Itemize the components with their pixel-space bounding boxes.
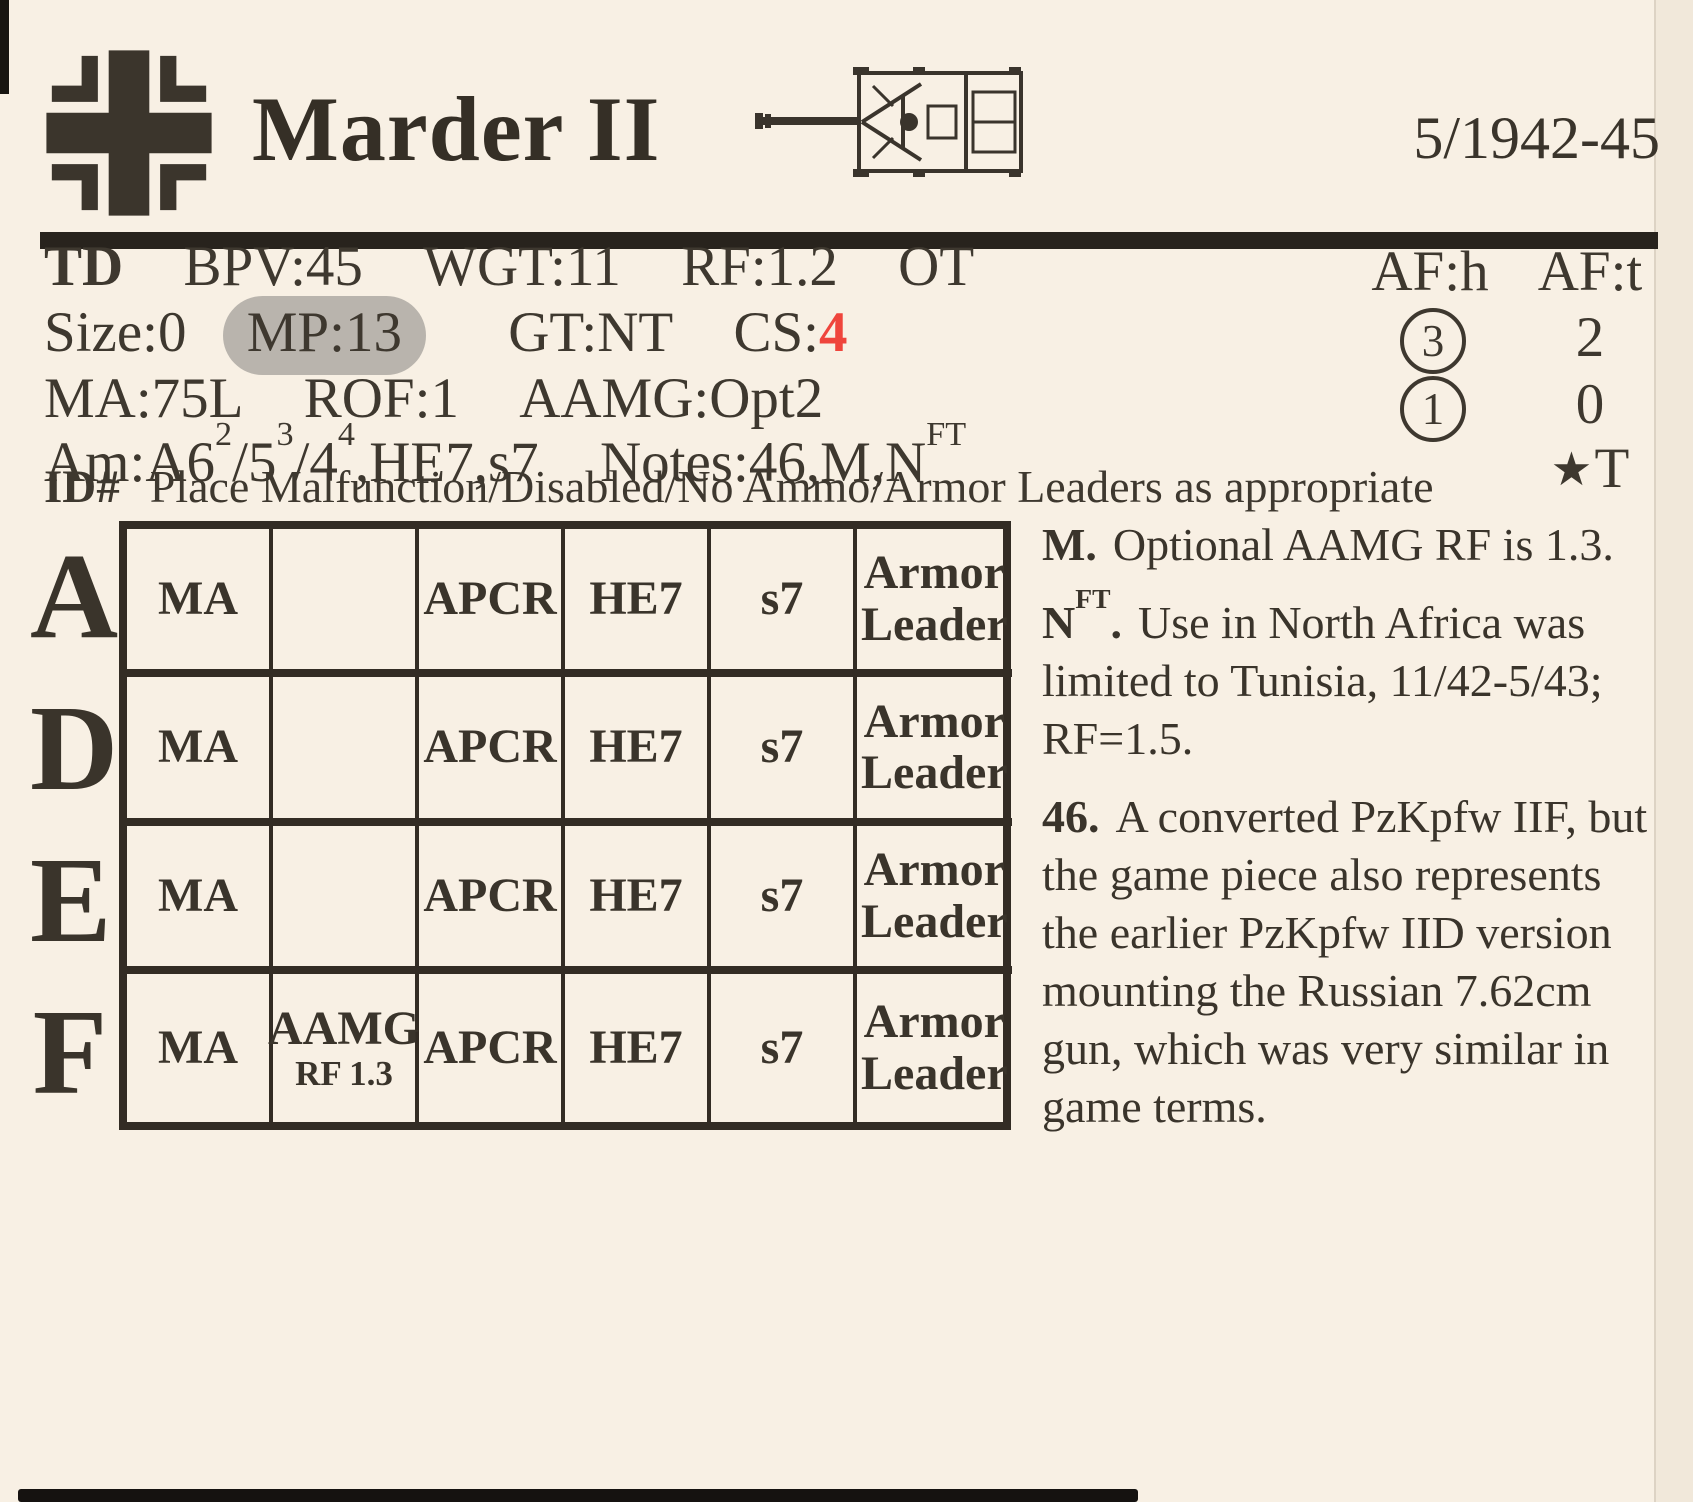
cell-apcr: APCR xyxy=(419,974,565,1122)
star-icon: ★ xyxy=(1551,444,1593,496)
cell-apcr: APCR xyxy=(419,677,565,817)
cell-armor-leader: Armor Leader xyxy=(857,974,1012,1122)
cell-empty xyxy=(273,529,419,669)
note-nft: NFT.Use in North Africa was limited to T… xyxy=(1042,594,1664,768)
usage-row-e: MA APCR HE7 s7 Armor Leader xyxy=(127,826,1012,974)
cell-ma: MA xyxy=(127,974,273,1122)
mp-stat-highlighted: MP:13 xyxy=(223,296,426,375)
row-letter-a: A xyxy=(30,536,110,658)
id-instruction-line: ID#Place Malfunction/Disabled/No Ammo/Ar… xyxy=(44,460,1434,514)
cell-ma: MA xyxy=(127,826,273,966)
cell-aamg: AAMG RF 1.3 xyxy=(273,974,419,1122)
af-hull-rear-circled: 1 xyxy=(1400,376,1466,442)
scan-bottom-bar xyxy=(18,1489,1138,1502)
aamg-stat: AAMG:Opt2 xyxy=(519,368,823,431)
rof-stat: ROF:1 xyxy=(304,368,459,431)
ot-stat: OT xyxy=(898,236,974,299)
cell-ma: MA xyxy=(127,529,273,669)
cell-empty xyxy=(273,677,419,817)
size-stat: Size:0 xyxy=(44,302,186,365)
cell-he7: HE7 xyxy=(565,529,711,669)
af-turret-rear: 0 xyxy=(1505,372,1675,437)
cell-armor-leader: Armor Leader xyxy=(857,677,1012,817)
star-t-note: ★T xyxy=(1505,436,1675,501)
af-hull-front-circled: 3 xyxy=(1400,308,1466,374)
usage-table: MA APCR HE7 s7 Armor Leader MA APCR HE7 … xyxy=(119,521,1011,1130)
cell-s7: s7 xyxy=(711,974,857,1122)
wgt-stat: WGT:11 xyxy=(423,236,621,299)
cell-apcr: APCR xyxy=(419,529,565,669)
cell-s7: s7 xyxy=(711,826,857,966)
cell-he7: HE7 xyxy=(565,677,711,817)
id-label: ID# xyxy=(44,461,120,513)
aamg-main: AAMG xyxy=(268,1003,420,1055)
rf-stat: RF:1.2 xyxy=(681,236,838,299)
stats-line-1: TD BPV:45 WGT:11 RF:1.2 OT xyxy=(44,236,974,299)
af-turret-header: AF:t xyxy=(1505,239,1675,304)
id-instruction-text: Place Malfunction/Disabled/No Ammo/Armor… xyxy=(150,461,1434,512)
gt-stat: GT:NT xyxy=(508,302,673,365)
af-turret-front: 2 xyxy=(1505,305,1675,370)
vehicle-class: TD xyxy=(44,236,123,299)
cell-apcr: APCR xyxy=(419,826,565,966)
stats-line-3: MA:75L ROF:1 AAMG:Opt2 xyxy=(44,368,823,431)
af-hull-header: AF:h xyxy=(1345,239,1515,304)
vehicle-notes: M.Optional AAMG RF is 1.3. NFT.Use in No… xyxy=(1042,516,1664,1156)
row-letter-e: E xyxy=(30,840,110,962)
usage-row-d: MA APCR HE7 s7 Armor Leader xyxy=(127,677,1012,825)
row-letter-d: D xyxy=(30,688,110,810)
cell-empty xyxy=(273,826,419,966)
vehicle-top-view-icon xyxy=(753,66,1031,185)
ma-stat: MA:75L xyxy=(44,368,244,431)
cell-s7: s7 xyxy=(711,677,857,817)
cs-value: 4 xyxy=(819,301,848,364)
cell-ma: MA xyxy=(127,677,273,817)
usage-row-f: MA AAMG RF 1.3 APCR HE7 s7 Armor Leader xyxy=(127,974,1012,1122)
vehicle-card: Marder II xyxy=(0,0,1693,1502)
cell-s7: s7 xyxy=(711,529,857,669)
note-46: 46.A converted PzKpfw IIF, but the game … xyxy=(1042,788,1664,1136)
bpv-stat: BPV:45 xyxy=(183,236,363,299)
cell-armor-leader: Armor Leader xyxy=(857,826,1012,966)
usage-row-a: MA APCR HE7 s7 Armor Leader xyxy=(127,529,1012,677)
vehicle-name-title: Marder II xyxy=(252,76,660,182)
cs-stat: CS:4 xyxy=(733,302,847,365)
date-range: 5/1942-45 xyxy=(1330,104,1660,173)
german-balkenkreuz-icon xyxy=(40,45,218,226)
note-m: M.Optional AAMG RF is 1.3. xyxy=(1042,516,1664,574)
aamg-rf-sub: RF 1.3 xyxy=(295,1055,393,1093)
scan-edge-mark xyxy=(0,0,9,94)
cell-he7: HE7 xyxy=(565,974,711,1122)
cell-armor-leader: Armor Leader xyxy=(857,529,1012,669)
cell-he7: HE7 xyxy=(565,826,711,966)
stats-line-2: Size:0 MP:13 GT:NT CS:4 xyxy=(44,302,848,365)
row-letter-f: F xyxy=(30,992,110,1114)
